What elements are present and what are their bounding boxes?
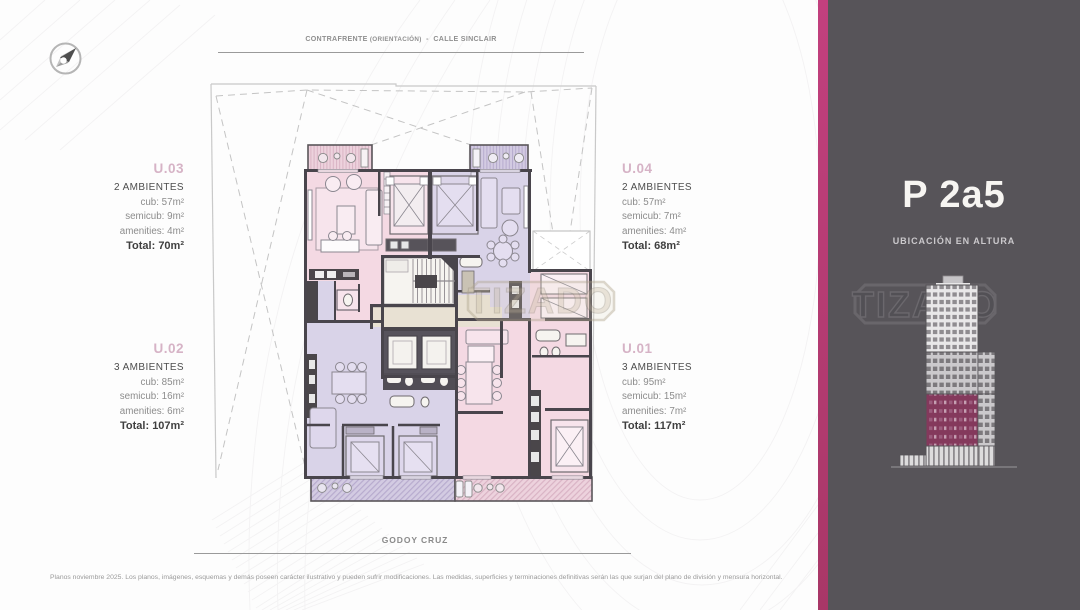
svg-text:TIZADO: TIZADO [468, 280, 614, 321]
